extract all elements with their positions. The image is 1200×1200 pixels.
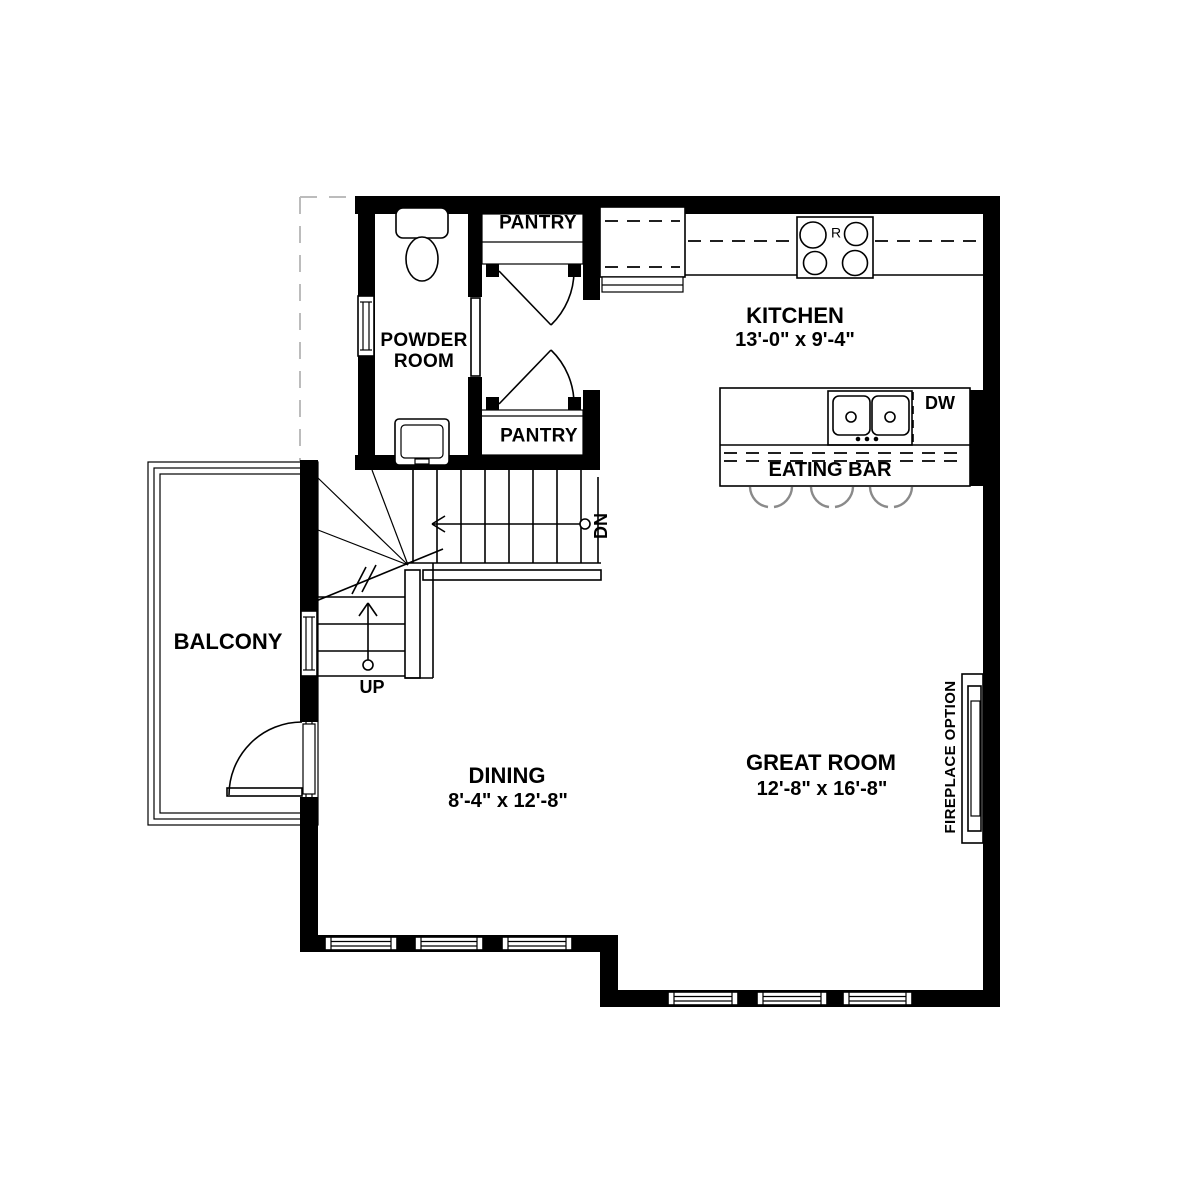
room-label-kitchen: KITCHEN xyxy=(746,304,844,328)
stair-treads-upper xyxy=(405,470,601,563)
balcony-door-swing-icon xyxy=(227,722,315,796)
stair-treads-lower xyxy=(318,597,405,676)
label-dishwasher: DW xyxy=(925,394,955,414)
floor-plan: POWDER ROOM PANTRY PANTRY KITCHEN 13'-0"… xyxy=(0,0,1200,1200)
stair-down-arrow xyxy=(432,516,590,532)
room-label-great-room: GREAT ROOM xyxy=(746,751,896,775)
label-fireplace-option: FIREPLACE OPTION xyxy=(943,680,960,833)
floor-plan-drawing xyxy=(0,0,1200,1200)
toilet-icon xyxy=(396,208,448,281)
label-stair-down: DN xyxy=(592,513,612,539)
stair-up-arrow xyxy=(359,603,377,670)
pantry-upper-door-swing-icon xyxy=(499,271,574,325)
room-label-pantry-lower: PANTRY xyxy=(500,427,578,448)
room-label-balcony: BALCONY xyxy=(174,630,283,654)
fireplace-icon xyxy=(962,674,983,843)
label-stair-up: UP xyxy=(359,678,384,698)
dim-label-great-room: 12'-8" x 16'-8" xyxy=(757,778,888,800)
dim-label-dining: 8'-4" x 12'-8" xyxy=(448,790,568,812)
room-label-powder-room: POWDER ROOM xyxy=(368,330,480,372)
stair-handrail xyxy=(405,563,601,678)
room-label-dining: DINING xyxy=(469,764,546,788)
stair-winders xyxy=(316,470,443,601)
fridge-icon xyxy=(600,207,685,292)
label-eating-bar: EATING BAR xyxy=(769,459,892,481)
room-label-pantry-upper: PANTRY xyxy=(499,214,577,235)
pantry-lower-door-swing-icon xyxy=(499,350,574,404)
dim-label-kitchen: 13'-0" x 9'-4" xyxy=(735,329,855,351)
stool-arc-icon xyxy=(750,487,912,507)
vanity-sink-icon xyxy=(395,419,449,465)
projection-line xyxy=(300,197,356,461)
label-range: R xyxy=(831,225,841,240)
